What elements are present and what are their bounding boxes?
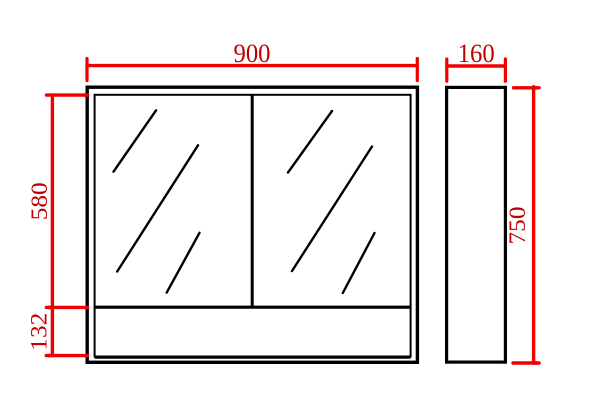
svg-text:750: 750 (505, 207, 530, 245)
svg-text:132: 132 (27, 313, 52, 351)
svg-text:580: 580 (27, 182, 52, 220)
svg-text:160: 160 (458, 39, 495, 68)
svg-text:900: 900 (234, 39, 271, 68)
